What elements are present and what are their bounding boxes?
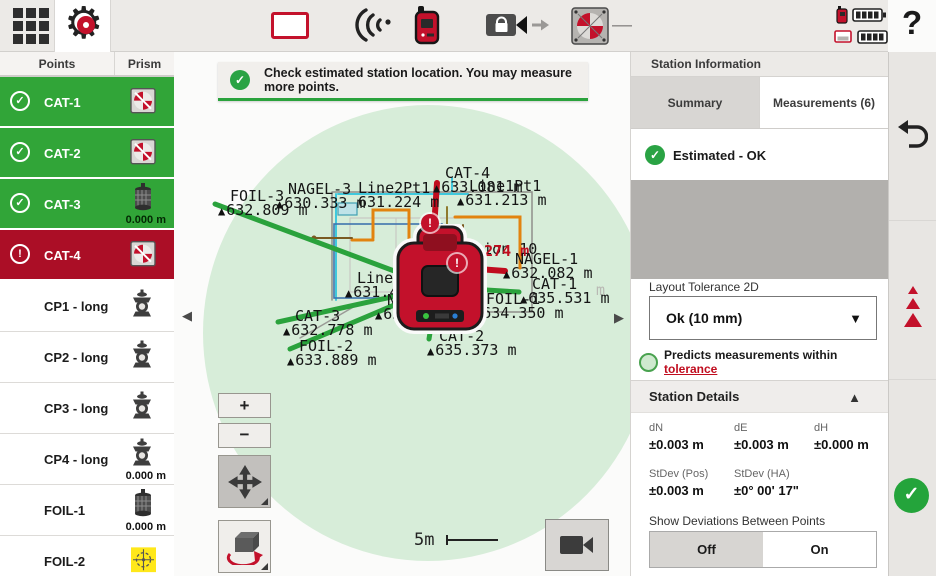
warning-badge-icon: ! xyxy=(448,254,466,272)
estimation-status: ✓ Estimated - OK xyxy=(645,145,888,165)
station-details-grid: dN±0.003 mdE±0.003 mdH±0.000 mStDev (Pos… xyxy=(649,422,881,498)
prism-prism360-icon xyxy=(130,183,156,214)
point-row-CAT-4[interactable]: !CAT-4 xyxy=(0,230,174,281)
display-screen-icon[interactable] xyxy=(271,12,309,39)
prism-prism360-icon xyxy=(130,489,156,520)
map-view[interactable]: FOIL-3▲632.809 mNAGEL-3▲630.333 mLine2Pt… xyxy=(174,52,630,576)
prism-yellow-icon xyxy=(131,547,156,572)
point-label: CP3 - long xyxy=(44,401,108,416)
check-circle-icon: ✓ xyxy=(10,142,30,162)
check-circle-icon: ✓ xyxy=(645,145,665,165)
level-indicator-icon xyxy=(904,313,922,327)
video-camera-icon xyxy=(558,532,596,558)
prism-pole-icon xyxy=(128,439,156,469)
point-row-FOIL-2[interactable]: FOIL-2 xyxy=(0,536,174,576)
point-marker-icon: ▲ xyxy=(276,197,283,211)
help-question-icon: ? xyxy=(902,4,922,42)
point-marker-icon: ▲ xyxy=(345,286,352,300)
detail-StDev (Pos): StDev (Pos)±0.003 m xyxy=(649,468,734,498)
confirm-button[interactable]: ✓ xyxy=(894,478,929,513)
prism-height-value: 0.000 m xyxy=(126,521,166,533)
zoom-in-button[interactable]: + xyxy=(218,393,271,418)
check-circle-icon: ✓ xyxy=(10,193,30,213)
prism-height-value: 0.000 m xyxy=(126,214,166,226)
prism-pole-icon xyxy=(128,392,156,422)
settings-button[interactable]: ⚙ xyxy=(55,0,110,52)
map-point-label-CAT-3: CAT-3▲632.778 m xyxy=(283,309,373,338)
action-rail: ✓ xyxy=(888,52,936,576)
prism-column-header: Prism xyxy=(115,52,174,75)
points-list: ✓CAT-1✓CAT-2✓CAT-30.000 m!CAT-4CP1 - lon… xyxy=(0,77,174,576)
battery-icon xyxy=(852,7,888,23)
detail-value: ±0.003 m xyxy=(649,483,734,498)
point-row-CP3 - long[interactable]: CP3 - long xyxy=(0,383,174,434)
tab-measurements[interactable]: Measurements (6) xyxy=(759,77,888,128)
predicts-text: Predicts measurements within xyxy=(664,348,837,362)
camera-lock-icon[interactable] xyxy=(484,10,556,40)
point-elevation: ▲632.778 m xyxy=(283,323,373,338)
point-marker-icon: ▲ xyxy=(433,181,440,195)
station-details-title: Station Details xyxy=(649,389,739,404)
point-row-CAT-3[interactable]: ✓CAT-30.000 m xyxy=(0,179,174,230)
station-mini-icon xyxy=(834,30,853,44)
top-toolbar: ⚙ — xyxy=(0,0,936,52)
banner-text: Check estimated station location. You ma… xyxy=(264,66,588,94)
remote-mini-icon xyxy=(836,6,848,24)
point-row-CP4 - long[interactable]: CP4 - long0.000 m xyxy=(0,434,174,485)
points-column-header: Points xyxy=(0,52,115,75)
panel-tabs: Summary Measurements (6) xyxy=(631,77,888,129)
station-battery-status xyxy=(834,29,893,45)
prism-target-icon xyxy=(130,240,156,266)
scale-label: 5m xyxy=(414,530,434,550)
point-row-CP1 - long[interactable]: CP1 - long xyxy=(0,281,174,332)
point-row-FOIL-1[interactable]: FOIL-10.000 m xyxy=(0,485,174,536)
point-elevation: m xyxy=(584,283,605,297)
point-marker-icon: ▲ xyxy=(218,204,225,218)
prism-pole-icon xyxy=(128,290,156,320)
level-indicator-icon xyxy=(908,286,918,294)
pan-arrows-icon xyxy=(227,464,263,500)
camera-view-button[interactable] xyxy=(545,519,609,571)
toggle-on[interactable]: On xyxy=(763,532,876,567)
map-point-label: m xyxy=(584,283,605,297)
panel-title: Station Information xyxy=(631,52,888,77)
station-details-header[interactable]: Station Details ▲ xyxy=(631,380,889,413)
point-row-CAT-1[interactable]: ✓CAT-1 xyxy=(0,77,174,128)
point-label: CP1 - long xyxy=(44,299,108,314)
prism-target-plate-icon[interactable] xyxy=(570,6,610,46)
detail-dN: dN±0.003 m xyxy=(649,422,734,452)
pan-button[interactable] xyxy=(218,455,271,508)
tolerance-dropdown[interactable]: Ok (10 mm) ▼ xyxy=(649,296,877,340)
tolerance-value: Ok (10 mm) xyxy=(666,310,742,326)
check-circle-icon: ✓ xyxy=(10,91,30,111)
detail-label: dH xyxy=(814,422,881,434)
chevron-down-icon: ▼ xyxy=(849,311,862,326)
zoom-out-button[interactable]: − xyxy=(218,423,271,448)
rotate-cube-icon xyxy=(225,527,265,565)
points-sidebar: Points Prism ✓CAT-1✓CAT-2✓CAT-30.000 m!C… xyxy=(0,52,174,576)
total-station-icon xyxy=(392,224,488,334)
point-label: CP4 - long xyxy=(44,452,108,467)
point-label: CAT-1 xyxy=(44,95,81,110)
detail-label: StDev (Pos) xyxy=(649,468,734,480)
toggle-off[interactable]: Off xyxy=(650,532,763,567)
points-list-header: Points Prism xyxy=(0,52,174,77)
collapse-sidebar-chevron[interactable]: ◀ xyxy=(182,308,192,324)
point-label: CAT-3 xyxy=(44,197,81,212)
detail-value: ±0° 00' 17" xyxy=(734,483,814,498)
rotate-3d-button[interactable] xyxy=(218,520,271,573)
apps-grid-icon[interactable] xyxy=(12,7,50,45)
prism-pole-icon xyxy=(128,341,156,371)
point-elevation: ▲635.373 m xyxy=(427,343,517,358)
undo-icon[interactable] xyxy=(898,118,928,150)
point-elevation: 631.224 m xyxy=(346,195,439,209)
point-label: FOIL-1 xyxy=(44,503,85,518)
map-point-label-FOIL-2: FOIL-2▲633.889 m xyxy=(287,339,377,368)
level-indicator-icon xyxy=(906,298,920,309)
station-information-panel: Station Information Summary Measurements… xyxy=(630,52,888,576)
point-row-CP2 - long[interactable]: CP2 - long xyxy=(0,332,174,383)
prism-target-icon xyxy=(130,138,156,164)
help-button[interactable]: ? xyxy=(888,0,936,52)
map-point-label-Line2Pt1: Line2Pt1631.224 m xyxy=(346,181,439,209)
point-elevation: ▲631.213 m xyxy=(457,193,547,208)
detail-dH: dH±0.000 m xyxy=(814,422,881,452)
tolerance-label: Layout Tolerance 2D xyxy=(649,280,759,294)
prism-target-icon xyxy=(130,87,156,113)
point-marker-icon: ▲ xyxy=(375,308,382,322)
tolerance-link[interactable]: tolerance xyxy=(664,362,717,376)
point-marker-icon: ▲ xyxy=(457,194,464,208)
warning-circle-icon: ! xyxy=(10,244,30,264)
point-marker-icon: ▲ xyxy=(283,324,290,338)
collapse-panel-chevron[interactable]: ▶ xyxy=(614,310,624,326)
collapse-up-icon[interactable]: ▲ xyxy=(848,390,861,405)
signal-icon[interactable] xyxy=(346,8,394,44)
detail-value: ±0.003 m xyxy=(649,437,734,452)
point-marker-icon: ▲ xyxy=(503,267,510,281)
collapsed-content-block xyxy=(631,180,889,279)
detail-dE: dE±0.003 m xyxy=(734,422,814,452)
point-marker-icon: ▲ xyxy=(287,354,294,368)
detail-label: dN xyxy=(649,422,734,434)
status-banner: ✓ Check estimated station location. You … xyxy=(218,62,588,101)
deviations-label: Show Deviations Between Points xyxy=(649,514,825,528)
map-point-label-Line1Pt1: Line1Pt1▲631.213 m xyxy=(457,179,547,208)
point-row-CAT-2[interactable]: ✓CAT-2 xyxy=(0,128,174,179)
detail-StDev (HA): StDev (HA)±0° 00' 17" xyxy=(734,468,814,498)
deviations-toggle: Off On xyxy=(649,531,877,568)
point-marker-icon: ▲ xyxy=(427,344,434,358)
point-label: CP2 - long xyxy=(44,350,108,365)
detail-label: StDev (HA) xyxy=(734,468,814,480)
point-label: CAT-2 xyxy=(44,146,81,161)
check-circle-icon: ✓ xyxy=(230,70,250,90)
point-elevation: ▲633.889 m xyxy=(287,353,377,368)
gear-red-center xyxy=(77,16,95,34)
detail-label: dE xyxy=(734,422,814,434)
tolerance-indicator-icon xyxy=(639,353,658,372)
minimize-dash: — xyxy=(612,14,632,37)
prism-height-value: 0.000 m xyxy=(126,470,166,482)
estimation-status-text: Estimated - OK xyxy=(673,148,766,163)
scale-bar: 5m xyxy=(414,530,498,550)
detail-value: ±0.000 m xyxy=(814,437,881,452)
tab-summary[interactable]: Summary xyxy=(631,77,759,128)
remote-controller-icon[interactable] xyxy=(412,6,442,46)
predicts-row: Predicts measurements within tolerance xyxy=(639,348,888,376)
detail-value: ±0.003 m xyxy=(734,437,814,452)
point-label: FOIL-2 xyxy=(44,554,85,569)
warning-badge-icon: ! xyxy=(421,214,439,232)
remote-battery-status xyxy=(836,6,888,24)
point-label: CAT-4 xyxy=(44,248,81,263)
